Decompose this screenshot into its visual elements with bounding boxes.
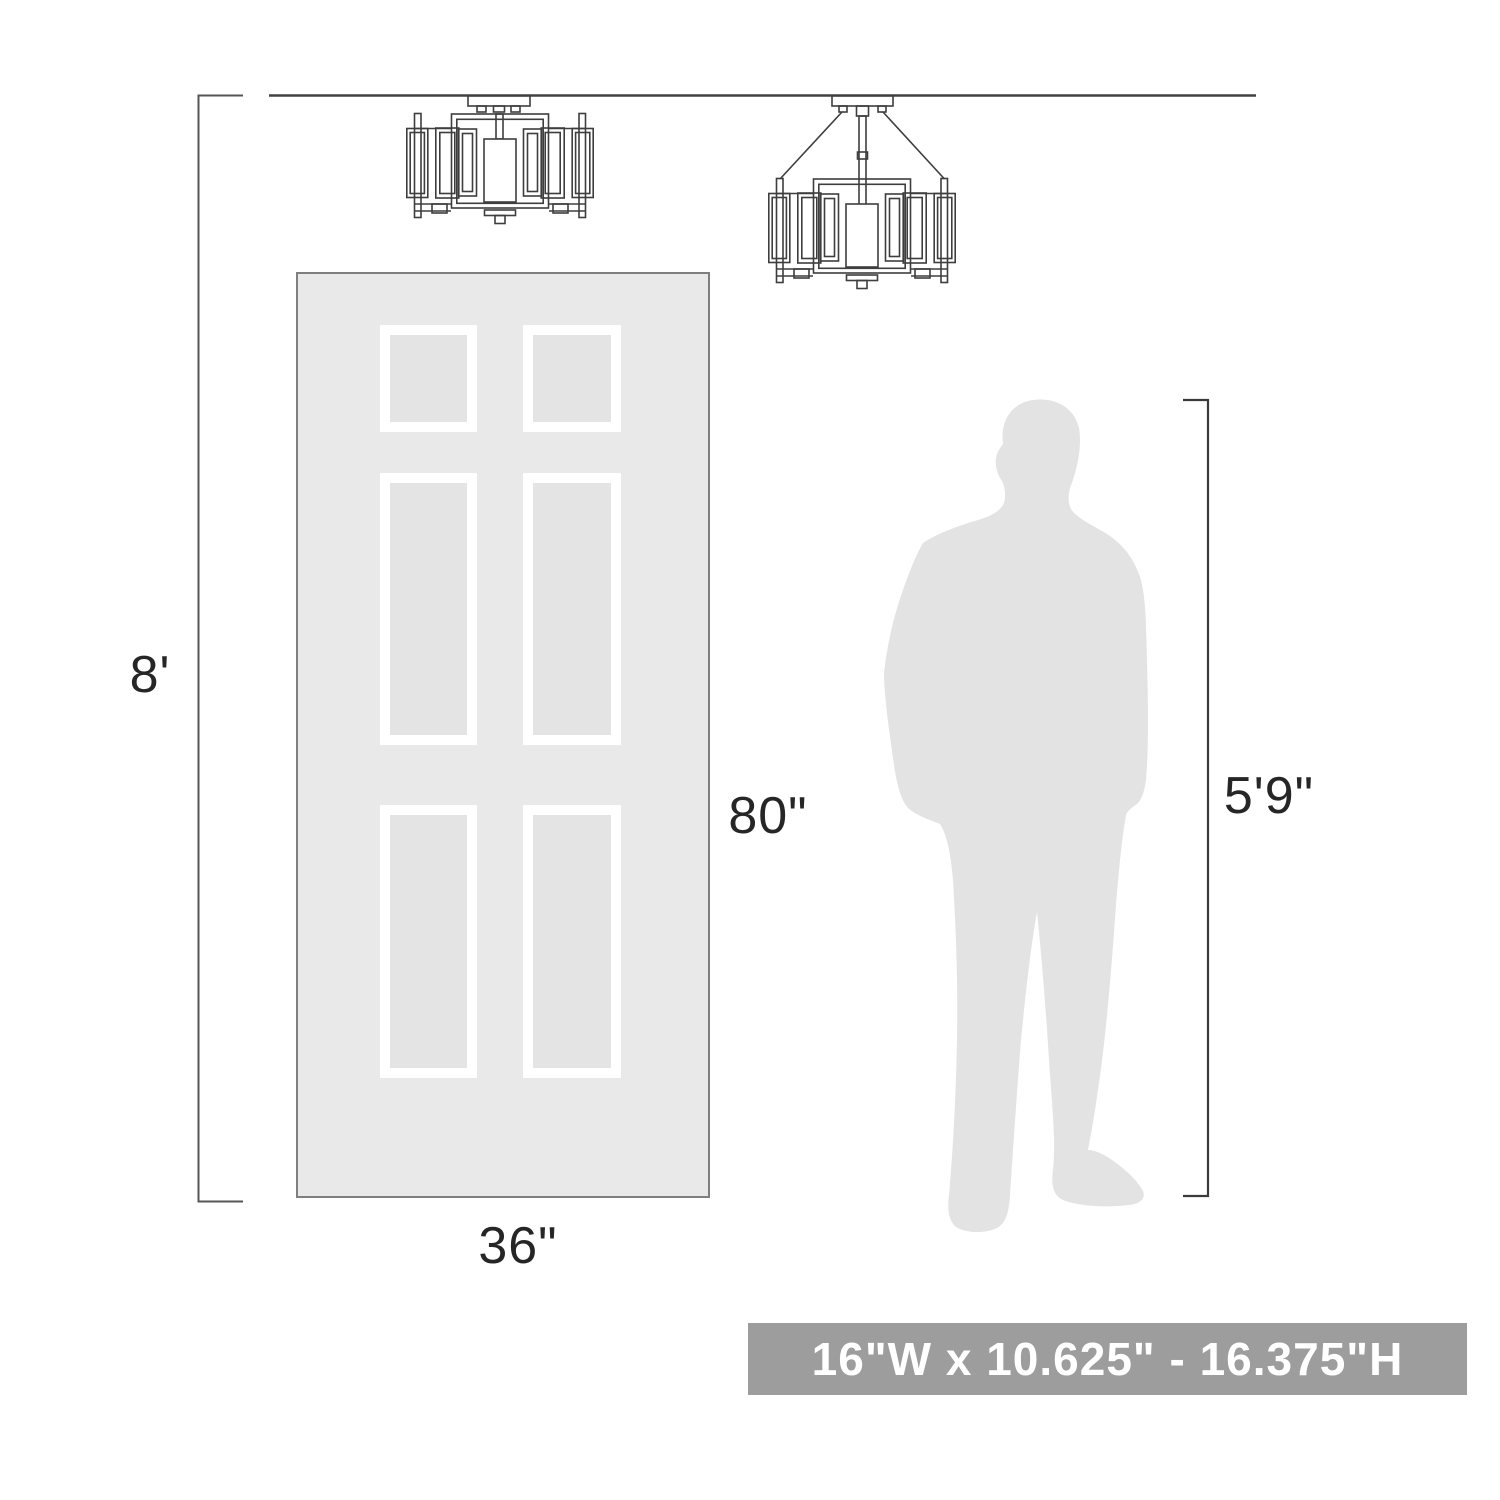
door-panel xyxy=(380,325,477,432)
door-panel-inset xyxy=(533,483,611,735)
ceiling-height-dimension-line xyxy=(199,96,244,1202)
door-width-label: 36" xyxy=(478,1216,557,1276)
downrod-fixture-drawing xyxy=(769,96,955,289)
support-wire xyxy=(780,112,842,179)
dimensions-banner: 16"W x 10.625" - 16.375"H xyxy=(748,1323,1467,1395)
person-height-label: 5'9" xyxy=(1224,766,1314,826)
door-panel xyxy=(380,805,477,1078)
canopy xyxy=(832,96,893,106)
stem xyxy=(496,114,503,139)
door-panel-inset xyxy=(390,483,467,735)
canopy xyxy=(468,96,530,106)
person-silhouette xyxy=(884,399,1148,1232)
flush-mount-fixture-drawing xyxy=(407,96,593,224)
door-illustration xyxy=(296,272,710,1198)
downrod xyxy=(859,116,866,205)
door-panel xyxy=(523,805,621,1078)
person-height-bracket xyxy=(1183,400,1208,1196)
door-panel xyxy=(523,325,621,432)
door-panel-inset xyxy=(390,335,467,422)
scale-diagram: 8' 80" 36" 5'9" 16"W x 10.625" - 16.375"… xyxy=(0,0,1500,1500)
door-panel xyxy=(380,473,477,745)
ceiling-height-label: 8' xyxy=(130,645,171,705)
door-height-label: 80" xyxy=(728,786,807,846)
door-panel xyxy=(523,473,621,745)
door-panel-inset xyxy=(533,335,611,422)
door-panel-inset xyxy=(533,815,611,1068)
door-panel-inset xyxy=(390,815,467,1068)
diagram-linework xyxy=(0,0,1500,1500)
support-wire xyxy=(883,112,945,179)
